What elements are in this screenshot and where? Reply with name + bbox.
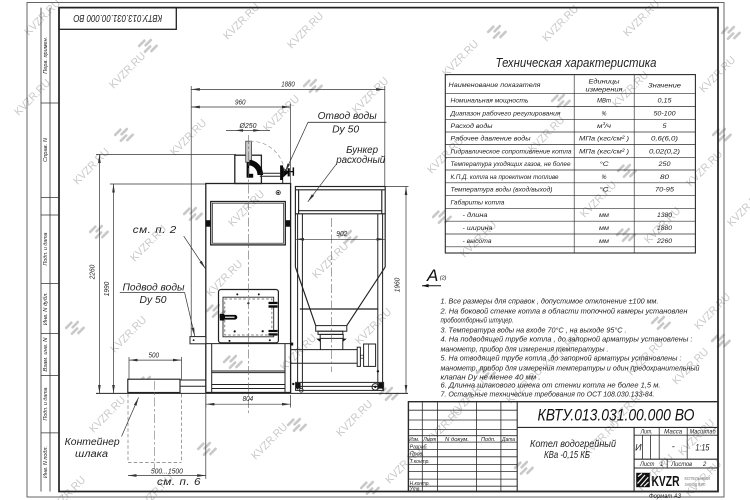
svg-text:Дата: Дата [501,437,515,443]
svg-text:МПа (кгс/см² ): МПа (кгс/см² ) [579,136,629,143]
svg-text:Подп.: Подп. [481,437,496,443]
svg-text:500: 500 [148,351,159,360]
svg-text:804: 804 [243,394,254,403]
svg-text:пробоотборный штуцер.: пробоотборный штуцер. [441,316,514,325]
svg-text:Подп. и дата: Подп. и дата [43,232,49,265]
svg-text:960: 960 [235,97,246,106]
svg-text:1: 1 [660,462,663,468]
svg-text:°С: °С [600,160,609,168]
svg-text:Номинальная мощность: Номинальная мощность [451,98,529,105]
svg-text:1990: 1990 [102,281,111,296]
svg-text:Т.контр.: Т.контр. [410,459,430,465]
svg-text:Справ. N: Справ. N [43,138,49,162]
svg-text:Взам. инв. N: Взам. инв. N [43,337,49,371]
svg-text:Листов: Листов [670,462,692,468]
svg-text:Габариты котла: Габариты котла [451,198,505,206]
svg-text:К.П.Д. котла на проектном топл: К.П.Д. котла на проектном топливе [451,174,559,181]
svg-text:Единицы: Единицы [589,77,620,85]
svg-text:KVZR.RU: KVZR.RU [310,240,351,281]
svg-text:Инв. N подл.: Инв. N подл. [43,446,49,478]
svg-text:-: - [672,442,675,452]
svg-text:1:15: 1:15 [695,443,710,453]
svg-text:%: % [602,174,607,181]
svg-text:Температура воды (вход/выход): Температура воды (вход/выход) [451,186,553,194]
svg-text:500...1500: 500...1500 [151,467,184,476]
svg-text:Расход воды: Расход воды [451,122,493,130]
svg-text:КВТУ.013.031.00.000 ВО: КВТУ.013.031.00.000 ВО [538,407,695,425]
svg-text:KVZR.RU: KVZR.RU [204,258,245,299]
svg-text:KVZR.RU: KVZR.RU [22,0,63,38]
svg-text:KVZR.RU: KVZR.RU [440,38,481,79]
svg-text:Отвод воды: Отвод воды [318,111,378,122]
svg-text:Утв.: Утв. [409,487,421,493]
svg-text:А: А [426,266,438,285]
svg-text:Подвод воды: Подвод воды [123,283,186,294]
svg-text:Пров.: Пров. [410,452,424,458]
svg-text:1380: 1380 [657,212,672,219]
svg-text:И: И [635,443,642,453]
svg-text:Наименование показателя: Наименование показателя [449,82,541,89]
svg-text:KVZR.RU: KVZR.RU [249,421,290,462]
svg-text:Значение: Значение [648,82,681,89]
svg-text:Диапазон рабочего регулировани: Диапазон рабочего регулирования [450,109,561,117]
svg-text:KVZR.RU: KVZR.RU [168,117,209,158]
svg-text:KVZR.RU: KVZR.RU [334,398,375,439]
svg-text:мм: мм [599,225,609,232]
svg-text:Инв. N дубл.: Инв. N дубл. [43,292,49,325]
svg-text:KVZR.RU: KVZR.RU [261,93,302,134]
svg-text:Контейнер: Контейнер [65,437,120,448]
svg-text:KVZR.RU: KVZR.RU [692,291,733,332]
svg-text:902: 902 [336,229,348,238]
svg-text:80: 80 [660,174,669,181]
svg-text:2. На боковой стенке котла в: 2. На боковой стенке котла в области топ… [439,307,687,316]
svg-text:0,6(6,0): 0,6(6,0) [651,136,678,143]
svg-text:см. п. 6: см. п. 6 [157,476,201,488]
svg-text:KVZR.RU: KVZR.RU [108,314,149,355]
svg-text:МПа (кгс/см² ): МПа (кгс/см² ) [579,148,629,155]
svg-text:6. Длинна шлакового шнека от: 6. Длинна шлакового шнека от стенки котл… [441,381,661,390]
svg-text:- высота: - высота [463,238,492,245]
svg-text:Масштаб: Масштаб [690,429,717,435]
svg-text:Подп. и дата: Подп. и дата [43,387,49,420]
svg-text:измерения: измерения [586,86,623,93]
svg-text:Изм.: Изм. [409,437,419,443]
svg-text:Температура уходящих газов, не: Температура уходящих газов, не более [451,160,571,168]
svg-text:Техническая характеристика: Техническая характеристика [496,56,657,70]
svg-text:1880: 1880 [281,80,295,89]
svg-text:Ø250: Ø250 [239,121,258,130]
svg-text:Разраб.: Разраб. [410,444,428,450]
svg-text:4. На подводящей трубе котла: 4. На подводящей трубе котла , до запорн… [441,335,693,344]
svg-text:2260: 2260 [88,264,97,280]
svg-text:Формат А3: Формат А3 [649,493,681,500]
svg-text:Лит.: Лит. [640,429,653,435]
svg-text:Масса: Масса [664,429,683,435]
svg-text:KVZR.RU: KVZR.RU [87,394,128,435]
svg-text:70-95: 70-95 [655,187,674,194]
svg-text:манометр, прибор для измерени: манометр, прибор для измерения температу… [441,345,609,354]
svg-text:2: 2 [702,462,707,468]
svg-text:Лист: Лист [422,437,436,443]
svg-text:1. Все размеры для справок ,: 1. Все размеры для справок , допустимое … [441,297,659,306]
svg-text:мм: мм [599,238,609,245]
svg-text:KVZR.RU: KVZR.RU [285,10,326,51]
svg-text:(2): (2) [440,276,447,282]
svg-text:МВт: МВт [597,98,611,105]
svg-text:шлака: шлака [75,449,108,460]
svg-text:Котел водогрейный: Котел водогрейный [530,439,616,450]
svg-text:мм: мм [599,212,609,219]
svg-text:манометр, прибор для измерени: манометр, прибор для измерения температу… [441,364,700,373]
svg-text:Лист: Лист [639,462,654,468]
svg-text:KVZR.RU: KVZR.RU [107,50,148,91]
svg-text:2260: 2260 [656,238,672,245]
svg-text:Гидравлическое сопротивление к: Гидравлическое сопротивление котла [451,147,572,155]
svg-text:KVZR.RU: KVZR.RU [226,188,267,229]
svg-text:Dy 50: Dy 50 [140,295,167,306]
svg-text:°С: °С [600,186,609,194]
svg-text:5. На отводящей трубе котла ,: 5. На отводящей трубе котла ,до запорной… [441,354,682,363]
svg-text:0,15: 0,15 [658,98,672,105]
svg-text:250: 250 [657,161,670,168]
svg-text:5: 5 [663,123,667,130]
svg-text:KVZR.RU: KVZR.RU [725,188,750,229]
svg-text:Перв. примен.: Перв. примен. [43,37,49,74]
svg-text:расходный: расходный [335,155,385,166]
svg-text:1960: 1960 [392,277,401,292]
svg-text:N докум.: N докум. [445,437,469,443]
svg-text:KVZR.RU: KVZR.RU [12,77,53,118]
svg-text:KVZR.RU: KVZR.RU [540,3,581,44]
svg-text:KVZR.RU: KVZR.RU [47,474,88,500]
svg-text:1880: 1880 [657,225,672,232]
svg-text:- длина: - длина [463,211,488,219]
svg-text:3. Температура воды на входе: 3. Температура воды на входе 70°С , на в… [441,326,627,335]
svg-text:0,02(0,2): 0,02(0,2) [649,148,680,155]
svg-text:Рабочее давление воды: Рабочее давление воды [451,135,531,143]
svg-text:Dy 50: Dy 50 [332,125,359,136]
svg-text:%: % [602,110,607,117]
svg-text:KVZR.RU: KVZR.RU [621,0,662,39]
svg-text:КВТУ.013.031.00.000 ВО: КВТУ.013.031.00.000 ВО [73,12,162,23]
svg-text:50-100: 50-100 [654,110,676,117]
svg-text:KVZR: KVZR [652,474,680,490]
svg-text:KVZR.RU: KVZR.RU [353,306,394,347]
svg-text:КВа -0,15 КБ: КВа -0,15 КБ [544,450,590,461]
svg-text:KVZR.RU: KVZR.RU [278,332,319,373]
svg-text:7. Остальные технические треб: 7. Остальные технические требования по О… [441,390,655,399]
svg-text:KVZR.RU: KVZR.RU [71,146,112,187]
svg-text:см. п. 2: см. п. 2 [133,224,177,236]
svg-text:ЗАВОД РЭП: ЗАВОД РЭП [685,482,706,488]
svg-text:- ширина: - ширина [463,225,493,232]
